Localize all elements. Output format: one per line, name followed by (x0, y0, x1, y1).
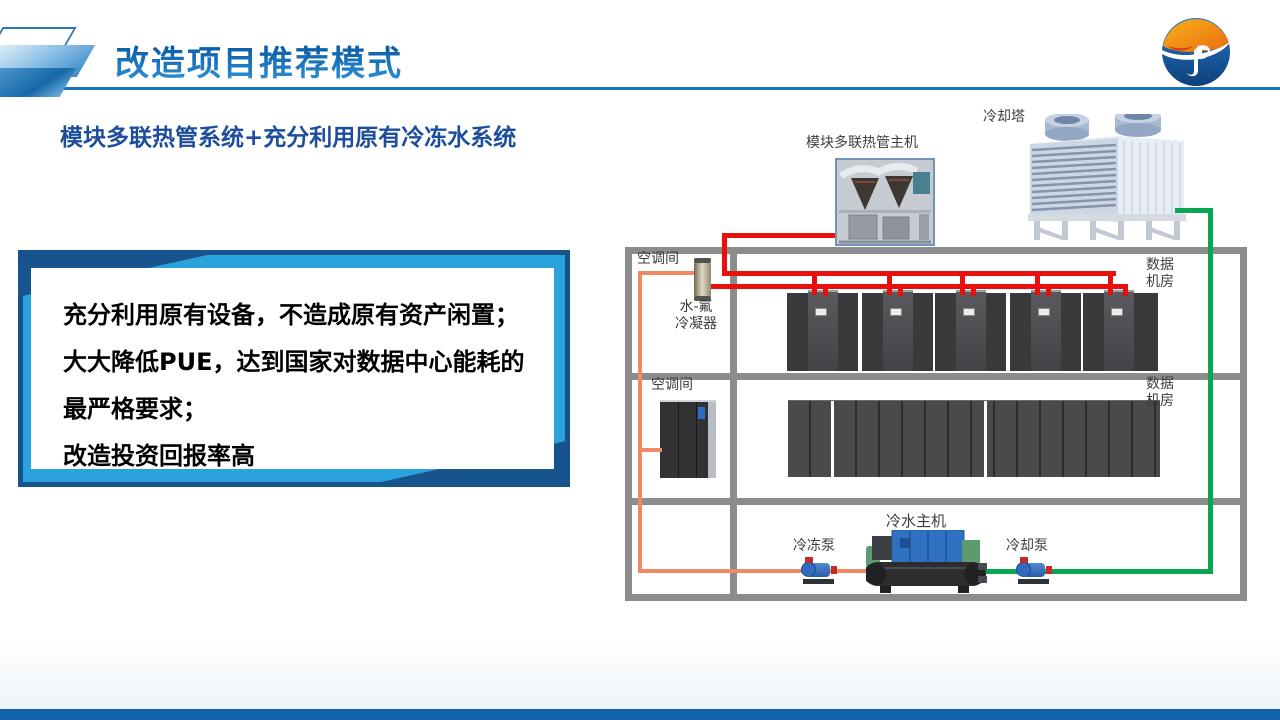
pump-volute (1016, 562, 1031, 577)
pump-flange (1046, 566, 1052, 574)
refrigerant-branch (887, 271, 892, 295)
water-fluorine-condenser-image (694, 261, 711, 298)
crac-display (890, 308, 902, 316)
crac-unit (1031, 290, 1061, 371)
crac-display (1038, 308, 1050, 316)
crac2-brand-emblem (698, 407, 705, 419)
rack-crac-group (1083, 293, 1158, 371)
ac-room1-label: 空调间 (637, 251, 679, 268)
crac-unit (883, 290, 913, 371)
pump-base (803, 579, 834, 584)
footer-bar (0, 709, 1280, 720)
pump-flange (805, 557, 813, 563)
benefit-line: 大大降低PUE，达到国家对数据中心能耗的 (63, 339, 544, 386)
header-deco-deep (0, 68, 76, 97)
crac-display (815, 308, 827, 316)
refrigerant-branch (1046, 284, 1051, 296)
cooling-pump-label: 冷却泵 (1006, 538, 1048, 555)
rack-crac-group (935, 293, 1006, 371)
crac-unit (808, 290, 838, 371)
data-room1-label: 数据 机房 (1146, 257, 1174, 291)
crac-unit (1104, 290, 1134, 371)
jp-globe-logo-icon (1160, 16, 1232, 88)
page-title: 改造项目推荐模式 (115, 36, 403, 85)
header-divider (36, 87, 1280, 90)
crac-display (963, 308, 975, 316)
chilled-pump-label: 冷冻泵 (793, 538, 835, 555)
pump-base (1018, 579, 1049, 584)
rack-row (788, 400, 1160, 477)
pump-flange (1020, 557, 1028, 563)
pump-flange (831, 566, 837, 574)
rack-crac-group (862, 293, 933, 371)
rack-crac-group (1010, 293, 1081, 371)
chilled-water-riser (638, 271, 642, 573)
crac2-side-panel (708, 402, 716, 478)
refrigerant-branch (823, 284, 828, 296)
crac2-seam (678, 402, 679, 478)
room-divider-vertical (730, 247, 737, 601)
refrigerant-branch (1035, 271, 1040, 295)
refrigerant-branch (812, 271, 817, 295)
benefit-line: 改造投资回报率高 (63, 433, 544, 480)
heat-pipe-unit-image (835, 158, 935, 246)
slide-subtitle: 模块多联热管系统+充分利用原有冷冻水系统 (60, 118, 516, 152)
refrigerant-branch (971, 284, 976, 296)
refrigerant-branch (898, 284, 903, 296)
chiller-label: 冷水主机 (886, 513, 946, 530)
heat-pipe-unit-label: 模块多联热管主机 (806, 135, 918, 152)
footer-fade (0, 640, 1280, 709)
refrigerant-branch (960, 271, 965, 295)
chilled-water-to-condenser (638, 271, 696, 275)
benefit-line: 最严格要求； (63, 386, 544, 433)
slide: 改造项目推荐模式 模块多联热管系统+充分利用原有冷冻水系统 充分利用原有设备，不… (0, 0, 1280, 720)
crac-unit-room2-image (660, 400, 716, 478)
refrigerant-branch (1108, 271, 1113, 295)
cooling-tower-label: 冷却塔 (983, 109, 1025, 126)
benefit-line: 充分利用原有设备，不造成原有资产闲置； (63, 292, 544, 339)
rack-row-gap (984, 401, 987, 477)
rack-row-gap (831, 401, 834, 477)
cooling-water-riser (1208, 208, 1213, 573)
cooling-pump-image (1014, 554, 1054, 584)
refrigerant-branch (1123, 284, 1128, 296)
refrigerant-supply-header (722, 271, 1116, 276)
refrigerant-return-header (710, 284, 1128, 289)
refrigerant-pipe-drop (722, 233, 727, 276)
condenser-label: 水-氟 冷凝器 (664, 299, 728, 333)
rack-crac-group (787, 293, 858, 371)
ac-room2-label: 空调间 (651, 377, 693, 394)
crac-display (1111, 308, 1123, 316)
chilled-pump-image (799, 554, 839, 584)
cooling-tower-image (1022, 114, 1194, 244)
benefits-box: 充分利用原有设备，不造成原有资产闲置； 大大降低PUE，达到国家对数据中心能耗的… (18, 250, 570, 487)
chilled-water-to-crac (641, 448, 662, 452)
benefits-box-inner: 充分利用原有设备，不造成原有资产闲置； 大大降低PUE，达到国家对数据中心能耗的… (31, 268, 554, 469)
water-chiller-image (866, 530, 988, 594)
crac2-seam (696, 402, 697, 478)
refrigerant-pipe-from-unit (722, 233, 839, 238)
crac-unit (956, 290, 986, 371)
pump-volute (801, 562, 816, 577)
data-room2-label: 数据 机房 (1146, 376, 1174, 410)
room-divider-floor2 (625, 498, 1247, 505)
